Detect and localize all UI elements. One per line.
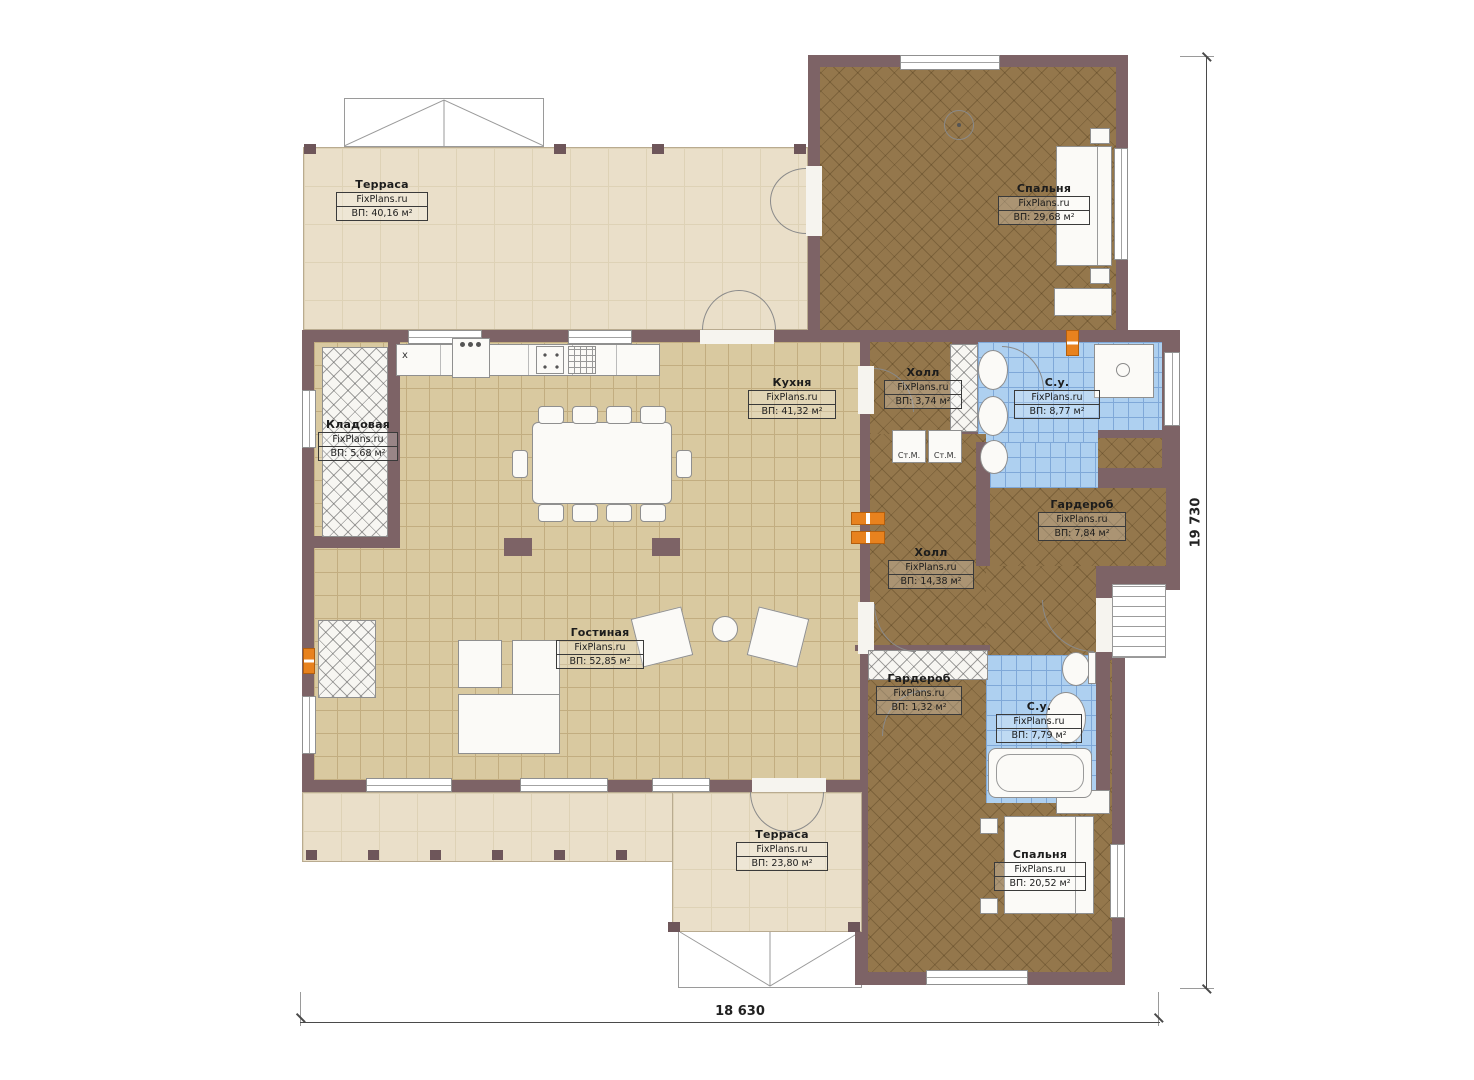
window-storage-left	[302, 390, 316, 448]
room-brand: FixPlans.ru	[877, 687, 961, 701]
bathtub-basin	[996, 754, 1084, 792]
kitchen-stove	[536, 346, 564, 374]
roof-outline-bottom	[678, 930, 862, 988]
window-bedroom-bottom	[926, 970, 1028, 985]
room-name: Спальня	[998, 182, 1090, 195]
nightstand	[1090, 128, 1110, 144]
window-bathroom-top-right	[1164, 352, 1180, 426]
sofa-section-horizontal	[458, 694, 560, 754]
roof-outline-top	[344, 98, 544, 147]
entry-stairs	[1112, 584, 1166, 658]
room-info-box: FixPlans.ru ВП: 14,38 м²	[888, 560, 974, 589]
floor-plan-canvas: x Ст.М. Ст.М.	[0, 0, 1474, 1080]
sink	[978, 350, 1008, 390]
door-gap-bedroom-terrace	[806, 166, 822, 236]
door-gap-living-terrace	[752, 778, 826, 792]
room-area: ВП: 5,68 м²	[319, 447, 397, 460]
terrace-column	[492, 850, 503, 860]
room-area: ВП: 29,68 м²	[999, 211, 1089, 224]
room-brand: FixPlans.ru	[337, 193, 427, 207]
room-area: ВП: 52,85 м²	[557, 655, 643, 668]
room-name: Холл	[888, 546, 974, 559]
dining-chair	[572, 406, 598, 424]
dimension-width-label: 18 630	[690, 1004, 790, 1019]
room-name: Терраса	[736, 828, 828, 841]
door-gap-terrace-kitchen	[700, 330, 774, 344]
kitchen-faucet-dot-1	[460, 342, 465, 347]
sofa-section-vertical	[512, 640, 560, 698]
room-label-bedroom-top: Спальня FixPlans.ru ВП: 29,68 м²	[998, 182, 1090, 225]
room-label-bathroom-bottom: С.у. FixPlans.ru ВП: 7,79 м²	[996, 700, 1082, 743]
room-label-kitchen: Кухня FixPlans.ru ВП: 41,32 м²	[748, 376, 836, 419]
dimension-line-height	[1206, 57, 1207, 989]
room-brand: FixPlans.ru	[1015, 391, 1099, 405]
heater	[851, 531, 885, 544]
terrace-column	[306, 850, 317, 860]
room-name: Кухня	[748, 376, 836, 389]
washing-machine: Ст.М.	[928, 430, 962, 463]
room-area: ВП: 8,77 м²	[1015, 405, 1099, 418]
bathtub	[988, 748, 1092, 798]
ceiling-light-dot	[957, 123, 961, 127]
room-label-terrace-top: Терраса FixPlans.ru ВП: 40,16 м²	[336, 178, 428, 221]
toilet	[1062, 652, 1090, 686]
room-info-box: FixPlans.ru ВП: 7,84 м²	[1038, 512, 1126, 541]
storage-wall-horizontal	[314, 536, 400, 548]
room-brand: FixPlans.ru	[995, 863, 1085, 877]
room-info-box: FixPlans.ru ВП: 7,79 м²	[996, 714, 1082, 743]
terrace-column	[554, 850, 565, 860]
window-living-left	[302, 696, 316, 754]
room-label-terrace-bottom: Терраса FixPlans.ru ВП: 23,80 м²	[736, 828, 828, 871]
room-area: ВП: 23,80 м²	[737, 857, 827, 870]
room-brand: FixPlans.ru	[889, 561, 973, 575]
room-area: ВП: 1,32 м²	[877, 701, 961, 714]
room-name: Гардероб	[1038, 498, 1126, 511]
room-label-bedroom-bottom: Спальня FixPlans.ru ВП: 20,52 м²	[994, 848, 1086, 891]
room-info-box: FixPlans.ru ВП: 1,32 м²	[876, 686, 962, 715]
room-label-living-room: Гостиная FixPlans.ru ВП: 52,85 м²	[556, 626, 644, 669]
kitchen-faucet-dot-2	[468, 342, 473, 347]
room-info-box: FixPlans.ru ВП: 52,85 м²	[556, 640, 644, 669]
ottoman	[458, 640, 502, 688]
terrace-column	[430, 850, 441, 860]
washing-machine-label: Ст.М.	[898, 451, 920, 462]
room-label-wardrobe: Гардероб FixPlans.ru ВП: 7,84 м²	[1038, 498, 1126, 541]
terrace-column	[794, 144, 806, 154]
nightstand	[980, 818, 998, 834]
toilet	[980, 440, 1008, 474]
kitchen-oven	[568, 346, 596, 374]
room-info-box: FixPlans.ru ВП: 5,68 м²	[318, 432, 398, 461]
room-info-box: FixPlans.ru ВП: 20,52 м²	[994, 862, 1086, 891]
dining-table	[532, 422, 672, 504]
room-label-storage: Кладовая FixPlans.ru ВП: 5,68 м²	[318, 418, 398, 461]
kitchen-x-mark: x	[402, 350, 408, 361]
terrace-column	[652, 144, 664, 154]
room-info-box: FixPlans.ru ВП: 8,77 м²	[1014, 390, 1100, 419]
room-brand: FixPlans.ru	[749, 391, 835, 405]
window-kitchen-2	[568, 330, 632, 344]
room-brand: FixPlans.ru	[737, 843, 827, 857]
room-name: Спальня	[994, 848, 1086, 861]
sink	[978, 396, 1008, 436]
door-gap-living-hall	[858, 602, 874, 654]
room-name: Кладовая	[318, 418, 398, 431]
kitchen-faucet-dot-3	[476, 342, 481, 347]
dining-chair	[606, 406, 632, 424]
room-label-wardrobe-small: Гардероб FixPlans.ru ВП: 1,32 м²	[876, 672, 962, 715]
heater	[851, 512, 885, 525]
window-living-bottom-2	[520, 778, 608, 792]
column-living-left	[504, 538, 532, 556]
room-brand: FixPlans.ru	[557, 641, 643, 655]
terrace-column	[616, 850, 627, 860]
wardrobe-floor-upper	[1098, 438, 1162, 468]
room-area: ВП: 14,38 м²	[889, 575, 973, 588]
dining-chair	[606, 504, 632, 522]
window-bedroom-top	[900, 55, 1000, 70]
heater	[303, 648, 315, 674]
room-label-bathroom-top: С.у. FixPlans.ru ВП: 8,77 м²	[1014, 376, 1100, 419]
room-area: ВП: 20,52 м²	[995, 877, 1085, 890]
terrace-column	[304, 144, 316, 154]
room-brand: FixPlans.ru	[997, 715, 1081, 729]
door-gap-kitchen-hall	[858, 366, 874, 414]
window-bedroom-top-right	[1114, 148, 1128, 260]
kitchen-counter	[396, 344, 660, 376]
dining-chair	[538, 406, 564, 424]
room-brand: FixPlans.ru	[885, 381, 961, 395]
room-area: ВП: 3,74 м²	[885, 395, 961, 408]
door-gap-entry	[1096, 598, 1112, 652]
room-info-box: FixPlans.ru ВП: 40,16 м²	[336, 192, 428, 221]
room-brand: FixPlans.ru	[999, 197, 1089, 211]
window-living-bottom-3	[652, 778, 710, 792]
room-brand: FixPlans.ru	[1039, 513, 1125, 527]
room-name: Гостиная	[556, 626, 644, 639]
room-info-box: FixPlans.ru ВП: 23,80 м²	[736, 842, 828, 871]
dresser-top-bedroom	[1054, 288, 1112, 316]
heater	[1066, 330, 1079, 356]
terrace-column	[368, 850, 379, 860]
room-name: Холл	[884, 366, 962, 379]
fireplace	[318, 620, 376, 698]
wall-bath-bedroom	[1096, 650, 1110, 805]
room-label-hall-top: Холл FixPlans.ru ВП: 3,74 м²	[884, 366, 962, 409]
dining-chair	[640, 504, 666, 522]
room-name: С.у.	[1014, 376, 1100, 389]
dining-chair	[512, 450, 528, 478]
nightstand	[980, 898, 998, 914]
dining-chair	[538, 504, 564, 522]
terrace-column	[668, 922, 680, 932]
terrace-column	[554, 144, 566, 154]
room-area: ВП: 7,79 м²	[997, 729, 1081, 742]
room-area: ВП: 40,16 м²	[337, 207, 427, 220]
room-area: ВП: 41,32 м²	[749, 405, 835, 418]
terrace-column	[848, 922, 860, 932]
room-name: Терраса	[336, 178, 428, 191]
window-living-bottom-1	[366, 778, 452, 792]
dimension-height-label: 19 730	[1189, 493, 1204, 553]
room-label-hall-main: Холл FixPlans.ru ВП: 14,38 м²	[888, 546, 974, 589]
room-info-box: FixPlans.ru ВП: 3,74 м²	[884, 380, 962, 409]
room-info-box: FixPlans.ru ВП: 41,32 м²	[748, 390, 836, 419]
coffee-table	[712, 616, 738, 642]
room-area: ВП: 7,84 м²	[1039, 527, 1125, 540]
dimension-line-width	[300, 1022, 1160, 1023]
extension-line	[300, 992, 301, 1026]
dining-chair	[640, 406, 666, 424]
room-name: С.у.	[996, 700, 1082, 713]
dining-chair	[572, 504, 598, 522]
window-bedroom-bottom-right	[1110, 844, 1125, 918]
washing-machine-label: Ст.М.	[934, 451, 956, 462]
room-name: Гардероб	[876, 672, 962, 685]
extension-line	[1158, 992, 1159, 1026]
nightstand	[1090, 268, 1110, 284]
column-living-right	[652, 538, 680, 556]
washing-machine: Ст.М.	[892, 430, 926, 463]
toilet-tank	[1088, 652, 1096, 684]
room-info-box: FixPlans.ru ВП: 29,68 м²	[998, 196, 1090, 225]
room-brand: FixPlans.ru	[319, 433, 397, 447]
dining-chair	[676, 450, 692, 478]
shower-drain	[1116, 363, 1130, 377]
